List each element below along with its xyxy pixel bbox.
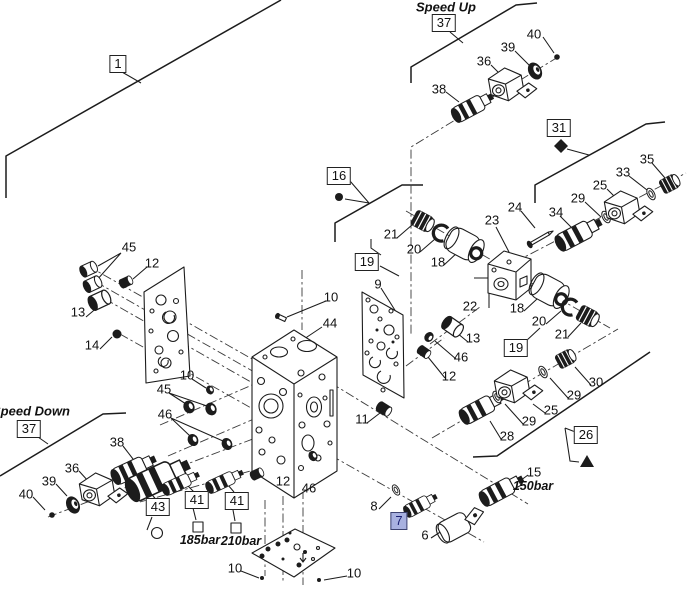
boxed-callout-16-3: 16 <box>327 167 351 185</box>
pressure-150bar-label: 150bar <box>513 479 553 493</box>
callout-46-31: 46 <box>454 351 468 364</box>
callout-21-19: 21 <box>555 328 569 341</box>
callout-10-44: 10 <box>347 567 361 580</box>
callout-6-47: 6 <box>421 529 428 542</box>
callout-20-12: 20 <box>407 243 421 256</box>
callout-28-29: 28 <box>500 430 514 443</box>
callout-39-39: 39 <box>42 475 56 488</box>
callout-10-43: 10 <box>228 562 242 575</box>
callout-38-37: 38 <box>110 436 124 449</box>
callout-10-33: 10 <box>180 369 194 382</box>
callout-13-30: 13 <box>466 332 480 345</box>
callout-33-5: 33 <box>616 166 630 179</box>
callout-12-32: 12 <box>442 370 456 383</box>
boxed-callout-31-2: 31 <box>547 119 571 137</box>
callout-18-13: 18 <box>431 256 445 269</box>
callout-46-35: 46 <box>158 408 172 421</box>
callout-45-20: 45 <box>122 241 136 254</box>
callout-40-40: 40 <box>19 488 33 501</box>
speed-down-label: Speed Down <box>0 404 70 419</box>
callout-29-28: 29 <box>522 415 536 428</box>
callout-8-46: 8 <box>370 500 377 513</box>
callout-36-38: 36 <box>65 462 79 475</box>
boxed-callout-43-8: 43 <box>146 498 170 516</box>
callout-9-14: 9 <box>374 278 381 291</box>
callout-40-0: 40 <box>527 28 541 41</box>
boxed-callout-26-6: 26 <box>574 426 598 444</box>
callout-44-24: 44 <box>323 317 337 330</box>
callout-21-11: 21 <box>384 228 398 241</box>
pressure-210bar-label: 210bar <box>221 534 261 548</box>
exploded-parts-diagram: 4039363835332529243423212018910221820214… <box>0 0 688 593</box>
callout-13-22: 13 <box>71 306 85 319</box>
callout-30-25: 30 <box>589 376 603 389</box>
boxed-callout-1-0: 1 <box>109 55 126 73</box>
callout-29-7: 29 <box>571 192 585 205</box>
callout-layer: 4039363835332529243423212018910221820214… <box>0 0 688 593</box>
callout-38-3: 38 <box>432 83 446 96</box>
callout-45-34: 45 <box>157 383 171 396</box>
callout-23-10: 23 <box>485 214 499 227</box>
callout-22-16: 22 <box>463 300 477 313</box>
callout-12-41: 12 <box>276 475 290 488</box>
callout-35-4: 35 <box>640 153 654 166</box>
callout-34-9: 34 <box>549 206 563 219</box>
callout-46-42: 46 <box>302 482 316 495</box>
callout-12-21: 12 <box>145 257 159 270</box>
speed-up-label: Speed Up <box>416 0 476 15</box>
callout-11-36: 11 <box>355 413 369 426</box>
callout-25-27: 25 <box>544 404 558 417</box>
callout-14-23: 14 <box>85 339 99 352</box>
callout-24-8: 24 <box>508 201 522 214</box>
callout-10-15: 10 <box>324 291 338 304</box>
callout-20-18: 20 <box>532 315 546 328</box>
boxed-callout-37-7: 37 <box>17 420 41 438</box>
callout-15-45: 15 <box>527 466 541 479</box>
boxed-callout-19-4: 19 <box>355 253 379 271</box>
callout-36-2: 36 <box>477 55 491 68</box>
callout-18-17: 18 <box>510 302 524 315</box>
pressure-185bar-label: 185bar <box>180 533 220 547</box>
callout-39-1: 39 <box>501 41 515 54</box>
boxed-callout-41-10: 41 <box>225 492 249 510</box>
callout-25-6: 25 <box>593 179 607 192</box>
boxed-callout-7-11: 7 <box>390 512 407 530</box>
callout-29-26: 29 <box>567 389 581 402</box>
boxed-callout-41-9: 41 <box>185 491 209 509</box>
boxed-callout-37-1: 37 <box>432 14 456 32</box>
boxed-callout-19-5: 19 <box>504 339 528 357</box>
